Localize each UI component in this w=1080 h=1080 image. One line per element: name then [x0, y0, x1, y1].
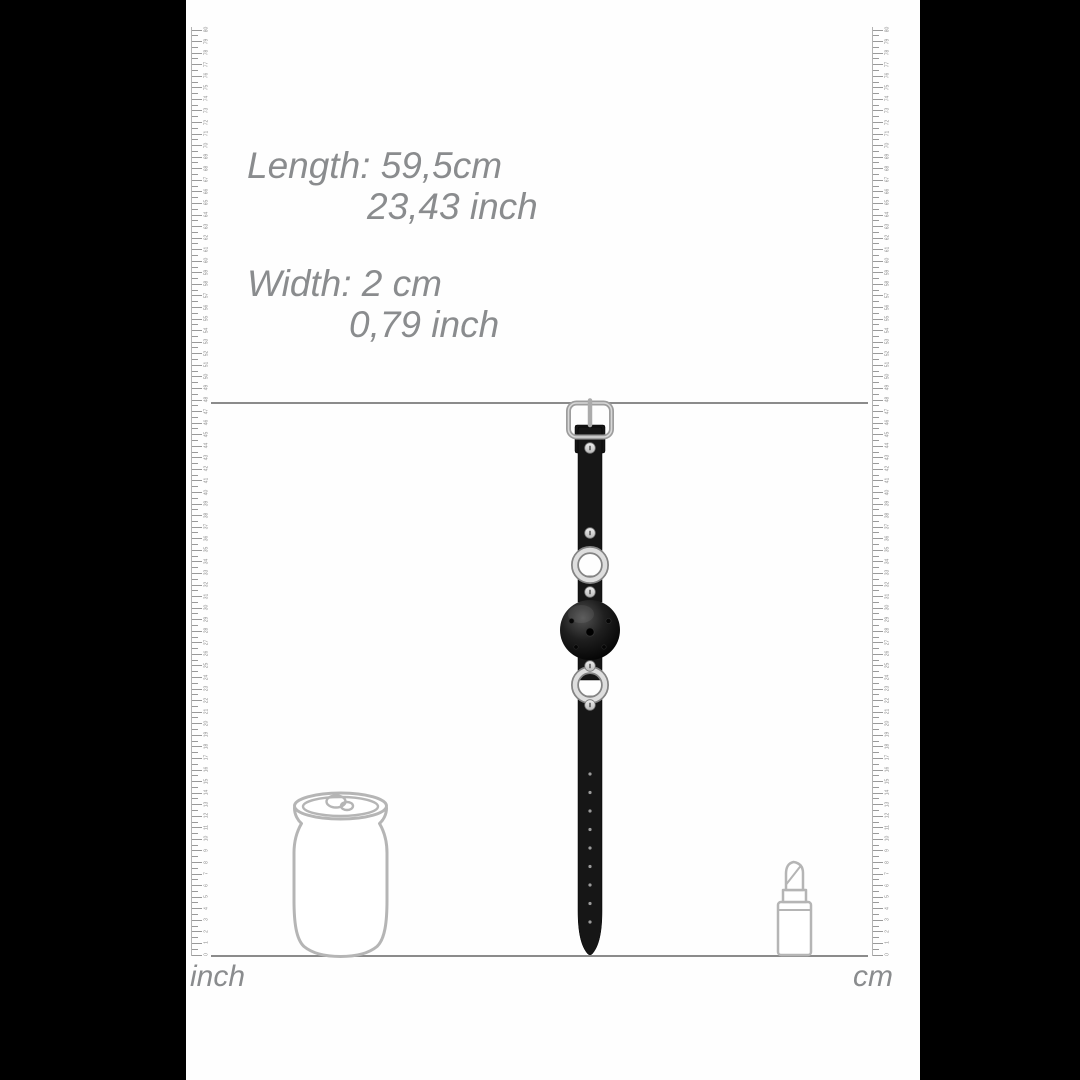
ruler-tick	[873, 180, 883, 181]
ruler-tick-number: 64	[204, 210, 211, 220]
ruler-tick-number: 29	[885, 614, 892, 624]
ruler-tick-number: 0	[885, 950, 892, 960]
ruler-tick	[873, 307, 883, 308]
ruler-tick	[192, 30, 202, 31]
ruler-minor-tick	[873, 405, 879, 406]
ruler-tick-number: 25	[204, 660, 211, 670]
ruler-tick	[873, 99, 883, 100]
ruler-tick-number: 29	[204, 614, 211, 624]
ruler-minor-tick	[873, 845, 879, 846]
ruler-minor-tick	[192, 359, 198, 360]
ruler-tick-number: 40	[885, 487, 892, 497]
ruler-tick-number: 53	[885, 337, 892, 347]
ruler-minor-tick	[192, 417, 198, 418]
ruler-minor-tick	[873, 382, 879, 383]
ruler-tick	[873, 550, 883, 551]
ruler-minor-tick	[873, 197, 879, 198]
ruler-tick-number: 12	[885, 811, 892, 821]
ruler-minor-tick	[873, 509, 879, 510]
ruler-tick-number: 74	[885, 94, 892, 104]
ruler-minor-tick	[192, 637, 198, 638]
ruler-tick	[873, 480, 883, 481]
ruler-tick	[192, 365, 202, 366]
ruler-tick-number: 27	[885, 637, 892, 647]
ruler-tick	[873, 215, 883, 216]
ruler-tick-number: 25	[885, 660, 892, 670]
ruler-tick	[192, 955, 202, 956]
ruler-minor-tick	[192, 625, 198, 626]
ruler-tick-number: 24	[885, 672, 892, 682]
ruler-tick	[873, 700, 883, 701]
ruler-minor-tick	[873, 660, 879, 661]
ruler-tick-number: 10	[204, 834, 211, 844]
ruler-minor-tick	[192, 278, 198, 279]
ruler-tick	[192, 596, 202, 597]
lipstick-neck	[783, 890, 806, 902]
ruler-tick	[192, 238, 202, 239]
ruler-tick-number: 50	[885, 371, 892, 381]
ruler-tick-number: 65	[204, 198, 211, 208]
ruler-minor-tick	[873, 290, 879, 291]
ruler-tick	[192, 411, 202, 412]
cm-ruler: 0123456789101112131415161718192021222324…	[872, 29, 898, 955]
ruler-tick-number: 60	[204, 256, 211, 266]
ruler-minor-tick	[873, 810, 879, 811]
ruler-minor-tick	[192, 879, 198, 880]
ruler-tick-number: 44	[885, 441, 892, 451]
ruler-tick	[873, 226, 883, 227]
ruler-tick	[873, 746, 883, 747]
ruler-tick-number: 42	[885, 464, 892, 474]
ruler-minor-tick	[192, 82, 198, 83]
ruler-tick	[873, 804, 883, 805]
ruler-tick	[192, 41, 202, 42]
ruler-minor-tick	[873, 498, 879, 499]
ruler-minor-tick	[873, 93, 879, 94]
ruler-tick-number: 23	[204, 684, 211, 694]
ruler-minor-tick	[873, 243, 879, 244]
ruler-tick-number: 59	[885, 267, 892, 277]
ruler-tick-number: 63	[204, 221, 211, 231]
ruler-tick-number: 3	[885, 915, 892, 925]
ruler-tick	[873, 53, 883, 54]
ruler-minor-tick	[873, 544, 879, 545]
ruler-tick	[873, 631, 883, 632]
ruler-minor-tick	[873, 579, 879, 580]
ruler-tick-number: 56	[204, 302, 211, 312]
ruler-tick	[873, 30, 883, 31]
ruler-tick-number: 11	[204, 822, 211, 832]
ruler-minor-tick	[873, 879, 879, 880]
ruler-tick-number: 40	[204, 487, 211, 497]
strap-hole	[588, 772, 591, 775]
ruler-tick	[192, 145, 202, 146]
strap-hole	[588, 920, 591, 923]
ruler-tick-number: 76	[204, 71, 211, 81]
ruler-minor-tick	[873, 58, 879, 59]
ruler-tick	[192, 353, 202, 354]
ruler-minor-tick	[192, 139, 198, 140]
ruler-tick	[192, 330, 202, 331]
ruler-minor-tick	[873, 926, 879, 927]
ruler-tick	[873, 897, 883, 898]
ruler-minor-tick	[192, 741, 198, 742]
ruler-tick-number: 16	[885, 765, 892, 775]
ruler-minor-tick	[873, 856, 879, 857]
ruler-minor-tick	[873, 671, 879, 672]
ruler-tick-number: 73	[885, 105, 892, 115]
ruler-tick-number: 75	[204, 82, 211, 92]
can-body	[294, 808, 387, 957]
ruler-tick-number: 67	[885, 175, 892, 185]
ruler-tick	[873, 538, 883, 539]
ruler-tick-number: 9	[204, 845, 211, 855]
ruler-minor-tick	[192, 694, 198, 695]
ruler-minor-tick	[873, 209, 879, 210]
ruler-tick	[192, 423, 202, 424]
ruler-tick	[873, 885, 883, 886]
ruler-tick-number: 35	[885, 545, 892, 555]
ruler-minor-tick	[192, 706, 198, 707]
ruler-tick	[873, 515, 883, 516]
ruler-minor-tick	[192, 498, 198, 499]
ruler-tick	[873, 723, 883, 724]
ruler-minor-tick	[873, 590, 879, 591]
ruler-tick-number: 23	[885, 684, 892, 694]
ruler-minor-tick	[192, 394, 198, 395]
ruler-minor-tick	[192, 902, 198, 903]
ruler-tick-number: 31	[204, 591, 211, 601]
ruler-tick-number: 5	[204, 892, 211, 902]
ruler-tick-number: 19	[204, 730, 211, 740]
ruler-minor-tick	[873, 798, 879, 799]
ruler-minor-tick	[192, 371, 198, 372]
ruler-tick-number: 77	[885, 59, 892, 69]
ruler-minor-tick	[192, 58, 198, 59]
ruler-tick	[192, 850, 202, 851]
ruler-minor-tick	[873, 70, 879, 71]
ruler-minor-tick	[873, 475, 879, 476]
ruler-tick	[873, 365, 883, 366]
ruler-minor-tick	[192, 47, 198, 48]
ball-hole	[569, 618, 574, 623]
ruler-minor-tick	[192, 116, 198, 117]
ruler-minor-tick	[192, 475, 198, 476]
ruler-tick	[192, 284, 202, 285]
strap-hole	[588, 791, 591, 794]
ruler-tick-number: 58	[204, 279, 211, 289]
ruler-minor-tick	[192, 301, 198, 302]
ruler-tick	[192, 157, 202, 158]
ruler-minor-tick	[192, 868, 198, 869]
ruler-tick-number: 71	[204, 129, 211, 139]
ruler-tick	[873, 110, 883, 111]
ruler-tick-number: 11	[885, 822, 892, 832]
ruler-minor-tick	[873, 35, 879, 36]
ruler-minor-tick	[873, 717, 879, 718]
ruler-tick-number: 0	[204, 950, 211, 960]
ruler-minor-tick	[873, 706, 879, 707]
ruler-minor-tick	[873, 139, 879, 140]
ruler-tick	[192, 261, 202, 262]
ruler-minor-tick	[873, 313, 879, 314]
ruler-tick	[192, 920, 202, 921]
ruler-minor-tick	[192, 105, 198, 106]
ruler-tick-number: 9	[885, 845, 892, 855]
ruler-tick	[873, 492, 883, 493]
ruler-minor-tick	[192, 613, 198, 614]
ruler-tick	[873, 677, 883, 678]
ruler-tick	[192, 446, 202, 447]
lower-strap	[578, 696, 602, 955]
ruler-minor-tick	[873, 775, 879, 776]
ruler-tick	[873, 64, 883, 65]
ruler-minor-tick	[873, 729, 879, 730]
ruler-minor-tick	[873, 220, 879, 221]
ruler-tick	[192, 191, 202, 192]
ruler-tick	[873, 920, 883, 921]
ruler-tick-number: 75	[885, 82, 892, 92]
ruler-tick-number: 78	[885, 48, 892, 58]
ruler-tick	[192, 746, 202, 747]
ruler-minor-tick	[873, 613, 879, 614]
left-black-bar	[0, 0, 186, 1080]
ruler-minor-tick	[873, 116, 879, 117]
ruler-tick-number: 1	[204, 938, 211, 948]
size-guide-image: Length: 59,5cm 23,43 inch Width: 2 cm 0,…	[0, 0, 1080, 1080]
ruler-minor-tick	[192, 243, 198, 244]
ruler-minor-tick	[873, 764, 879, 765]
ruler-minor-tick	[192, 822, 198, 823]
ruler-tick	[192, 226, 202, 227]
ruler-minor-tick	[873, 787, 879, 788]
ruler-tick	[873, 376, 883, 377]
ruler-tick	[192, 758, 202, 759]
ruler-minor-tick	[192, 324, 198, 325]
ruler-tick	[192, 874, 202, 875]
ruler-minor-tick	[192, 532, 198, 533]
ruler-tick	[192, 480, 202, 481]
ruler-tick	[192, 203, 202, 204]
ruler-tick-number: 54	[204, 325, 211, 335]
ruler-tick	[873, 770, 883, 771]
ruler-tick-number: 4	[885, 903, 892, 913]
strap-hole	[588, 902, 591, 905]
ruler-minor-tick	[192, 926, 198, 927]
ruler-tick	[192, 319, 202, 320]
ruler-tick-number: 19	[885, 730, 892, 740]
ball-hole	[606, 618, 611, 623]
ruler-tick-number: 71	[885, 129, 892, 139]
ruler-tick-number: 41	[885, 475, 892, 485]
ruler-tick-number: 15	[204, 776, 211, 786]
ruler-tick	[192, 908, 202, 909]
ruler-tick-number: 27	[204, 637, 211, 647]
rivet	[585, 528, 596, 539]
ruler-tick	[192, 492, 202, 493]
ruler-tick	[873, 272, 883, 273]
ruler-minor-tick	[192, 810, 198, 811]
ruler-minor-tick	[873, 394, 879, 395]
ruler-tick-number: 35	[204, 545, 211, 555]
ruler-tick-number: 44	[204, 441, 211, 451]
ruler-minor-tick	[873, 174, 879, 175]
ruler-tick	[192, 897, 202, 898]
ruler-tick-number: 50	[204, 371, 211, 381]
ruler-tick	[873, 261, 883, 262]
ruler-tick-number: 46	[204, 418, 211, 428]
ball-hole-center	[586, 628, 594, 636]
ruler-tick-number: 47	[204, 406, 211, 416]
ruler-tick-number: 49	[204, 383, 211, 393]
ruler-tick	[873, 353, 883, 354]
ruler-tick-number: 57	[885, 290, 892, 300]
ruler-minor-tick	[873, 891, 879, 892]
ruler-tick-number: 58	[885, 279, 892, 289]
ruler-tick	[873, 908, 883, 909]
ruler-minor-tick	[192, 220, 198, 221]
ruler-minor-tick	[192, 775, 198, 776]
ruler-minor-tick	[873, 625, 879, 626]
ruler-tick-number: 18	[204, 741, 211, 751]
ruler-tick-number: 46	[885, 418, 892, 428]
ruler-tick	[192, 827, 202, 828]
ruler-tick-number: 77	[204, 59, 211, 69]
ruler-minor-tick	[873, 602, 879, 603]
ruler-tick-number: 45	[885, 429, 892, 439]
ruler-tick	[873, 561, 883, 562]
ruler-minor-tick	[873, 255, 879, 256]
ruler-minor-tick	[192, 602, 198, 603]
ruler-tick-number: 37	[885, 522, 892, 532]
ruler-minor-tick	[192, 267, 198, 268]
ruler-tick-number: 68	[885, 163, 892, 173]
ruler-minor-tick	[873, 683, 879, 684]
ruler-tick-number: 26	[204, 649, 211, 659]
ruler-tick	[192, 712, 202, 713]
ruler-tick-number: 26	[885, 649, 892, 659]
ruler-tick-number: 39	[885, 499, 892, 509]
ruler-tick-number: 61	[204, 244, 211, 254]
ruler-minor-tick	[873, 868, 879, 869]
ruler-tick-number: 70	[885, 140, 892, 150]
width-value-cm: Width: 2 cm	[247, 264, 442, 304]
ruler-tick	[192, 538, 202, 539]
ruler-tick-number: 56	[885, 302, 892, 312]
ruler-tick	[873, 758, 883, 759]
ruler-minor-tick	[192, 521, 198, 522]
ruler-tick-number: 24	[204, 672, 211, 682]
ruler-minor-tick	[873, 162, 879, 163]
ruler-tick	[192, 804, 202, 805]
ruler-tick	[192, 87, 202, 88]
ruler-tick-number: 30	[885, 603, 892, 613]
ruler-tick-number: 48	[204, 395, 211, 405]
ruler-tick	[192, 122, 202, 123]
ruler-tick	[192, 64, 202, 65]
ruler-minor-tick	[873, 822, 879, 823]
ruler-tick	[192, 400, 202, 401]
rivet	[585, 443, 596, 454]
ruler-minor-tick	[192, 336, 198, 337]
ruler-tick-number: 12	[204, 811, 211, 821]
ruler-tick-number: 47	[885, 406, 892, 416]
ruler-tick-number: 36	[885, 533, 892, 543]
ruler-tick-number: 7	[885, 869, 892, 879]
ruler-tick	[873, 145, 883, 146]
ruler-tick	[873, 955, 883, 956]
ruler-tick	[192, 168, 202, 169]
ruler-tick-number: 68	[204, 163, 211, 173]
ruler-tick	[192, 642, 202, 643]
ruler-tick-number: 54	[885, 325, 892, 335]
ruler-minor-tick	[873, 532, 879, 533]
ruler-tick-number: 3	[204, 915, 211, 925]
cm-ruler-label: cm	[820, 961, 893, 993]
ruler-minor-tick	[192, 93, 198, 94]
ruler-tick-number: 20	[204, 718, 211, 728]
ruler-tick	[192, 110, 202, 111]
ruler-minor-tick	[192, 833, 198, 834]
ruler-tick	[873, 434, 883, 435]
ruler-tick	[873, 191, 883, 192]
ruler-tick	[873, 87, 883, 88]
ruler-tick	[873, 735, 883, 736]
ruler-minor-tick	[192, 440, 198, 441]
ruler-tick-number: 32	[885, 580, 892, 590]
ruler-minor-tick	[192, 463, 198, 464]
ruler-tick	[192, 53, 202, 54]
ruler-tick	[873, 388, 883, 389]
ruler-tick-number: 45	[204, 429, 211, 439]
ruler-tick-number: 74	[204, 94, 211, 104]
ruler-minor-tick	[873, 648, 879, 649]
ruler-tick-number: 70	[204, 140, 211, 150]
ruler-tick-number: 59	[204, 267, 211, 277]
ruler-tick-number: 10	[885, 834, 892, 844]
strap-hole	[588, 828, 591, 831]
ruler-tick-number: 78	[204, 48, 211, 58]
drink-can-illustration	[285, 780, 400, 960]
ruler-tick-number: 16	[204, 765, 211, 775]
o-ring-top	[575, 550, 605, 580]
ruler-minor-tick	[873, 521, 879, 522]
ruler-tick	[192, 434, 202, 435]
ruler-tick	[192, 469, 202, 470]
ruler-tick	[873, 203, 883, 204]
ruler-tick	[873, 827, 883, 828]
ruler-tick-number: 48	[885, 395, 892, 405]
ruler-minor-tick	[192, 729, 198, 730]
ruler-tick-number: 8	[204, 857, 211, 867]
ruler-tick-number: 38	[885, 510, 892, 520]
strap-hole	[588, 809, 591, 812]
ruler-tick-number: 21	[204, 707, 211, 717]
ruler-tick	[873, 134, 883, 135]
ruler-minor-tick	[192, 486, 198, 487]
ruler-tick	[192, 504, 202, 505]
strap-hole	[588, 865, 591, 868]
ruler-tick-number: 69	[204, 152, 211, 162]
ruler-minor-tick	[873, 463, 879, 464]
ruler-minor-tick	[873, 694, 879, 695]
ruler-minor-tick	[192, 290, 198, 291]
ruler-tick	[192, 527, 202, 528]
ruler-tick	[192, 816, 202, 817]
ruler-minor-tick	[873, 428, 879, 429]
ruler-tick	[192, 631, 202, 632]
ruler-tick-number: 7	[204, 869, 211, 879]
